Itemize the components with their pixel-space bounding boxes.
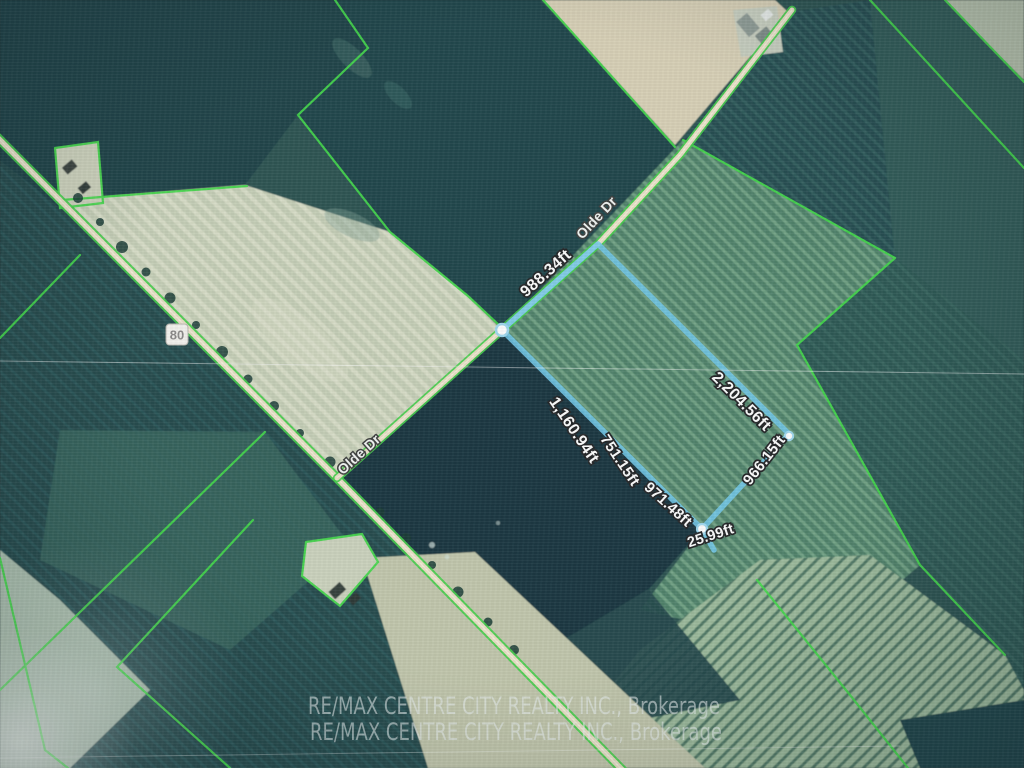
brokerage-watermark-line2: RE/MAX CENTRE CITY REALTY INC., Brokerag… <box>310 718 722 746</box>
measure-vertex-dot <box>785 432 793 440</box>
brokerage-watermark-line1: RE/MAX CENTRE CITY REALTY INC., Brokerag… <box>308 692 720 720</box>
map-canvas[interactable]: 80 Olde Dr Olde Dr 988.34ft 2,204.56ft 9… <box>0 0 1024 768</box>
measure-vertex-dot <box>496 324 508 336</box>
satellite-map: 80 Olde Dr Olde Dr 988.34ft 2,204.56ft 9… <box>0 0 1024 768</box>
highway-80-badge: 80 <box>166 324 188 345</box>
svg-text:80: 80 <box>170 328 184 343</box>
